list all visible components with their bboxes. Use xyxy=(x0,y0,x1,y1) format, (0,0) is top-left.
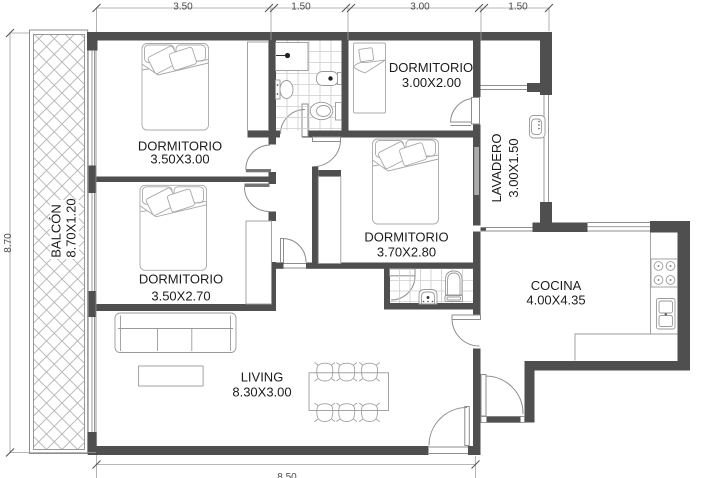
svg-text:3.00X2.00: 3.00X2.00 xyxy=(402,75,461,90)
svg-text:COCINA: COCINA xyxy=(531,278,582,293)
svg-text:DORMITORIO: DORMITORIO xyxy=(389,60,473,75)
svg-text:8.30X3.00: 8.30X3.00 xyxy=(232,385,291,400)
svg-text:DORMITORIO: DORMITORIO xyxy=(139,272,223,287)
svg-text:3.50: 3.50 xyxy=(173,2,193,13)
svg-text:8.50: 8.50 xyxy=(277,472,297,478)
svg-text:3.70X2.80: 3.70X2.80 xyxy=(377,245,436,260)
svg-text:BALCÓN: BALCÓN xyxy=(49,204,64,257)
svg-text:LIVING: LIVING xyxy=(241,370,284,385)
svg-text:4.00X4.35: 4.00X4.35 xyxy=(526,293,585,308)
svg-text:1.50: 1.50 xyxy=(291,2,311,13)
svg-text:1.50: 1.50 xyxy=(508,2,528,13)
svg-text:8.70X1.20: 8.70X1.20 xyxy=(64,198,79,257)
svg-text:LAVADERO: LAVADERO xyxy=(489,134,504,203)
svg-text:DORMITORIO: DORMITORIO xyxy=(364,230,448,245)
svg-text:3.00X1.50: 3.00X1.50 xyxy=(506,138,521,197)
svg-text:3.50X2.70: 3.50X2.70 xyxy=(151,289,210,304)
svg-text:8.70: 8.70 xyxy=(3,233,14,253)
svg-text:3.00: 3.00 xyxy=(410,2,430,13)
svg-text:3.50X3.00: 3.50X3.00 xyxy=(150,152,209,167)
